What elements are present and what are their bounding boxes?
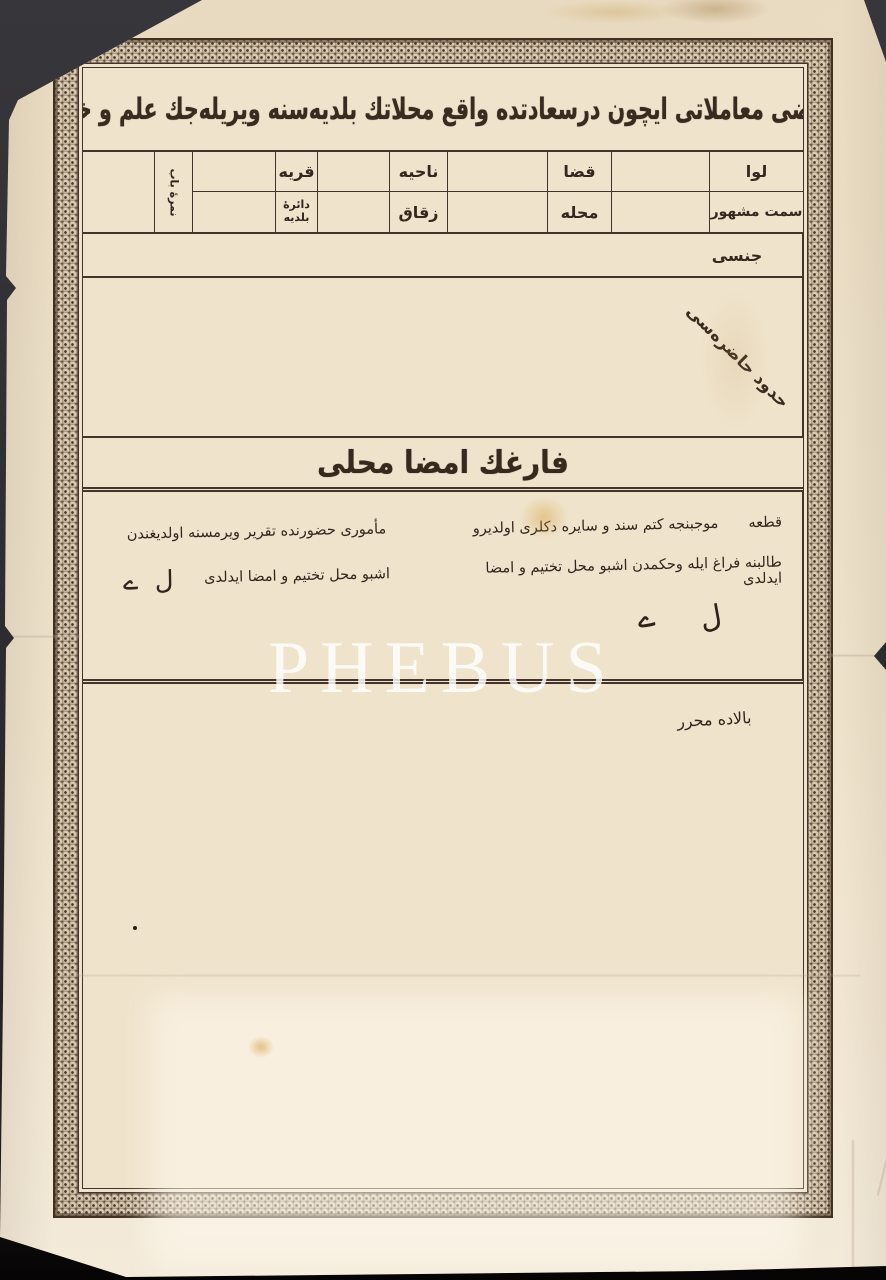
torn-paper-sheet: هر نوع املاك و اراضى معاملاتى ايچون درسع… — [0, 0, 886, 1280]
signature-heading-band: فارغك امضا محلى — [83, 438, 803, 492]
field-value-nahiye — [318, 152, 390, 192]
boundaries-write-area — [83, 278, 672, 436]
stain — [660, 0, 770, 24]
stain — [545, 0, 685, 24]
boundaries-grid: حدود حاضره‌سى — [83, 278, 803, 436]
field-label-semt: سمت مشهور — [710, 192, 803, 232]
cins-value-area — [83, 234, 672, 276]
boundaries-label-cell: حدود حاضره‌سى — [672, 278, 803, 436]
left-note-line2-text: اشبو محل تختيم و امضا ايدلدى — [204, 566, 390, 586]
flourish-mark: ے — [634, 599, 657, 637]
field-value-karye — [193, 152, 276, 192]
title-band: هر نوع املاك و اراضى معاملاتى ايچون درسع… — [83, 68, 803, 152]
field-value-kapi-numarasi — [83, 152, 155, 232]
flourish-mark: ل ے — [123, 566, 174, 597]
left-note-line2: اشبو محل تختيم و امضا ايدلدى ل ے — [105, 561, 409, 597]
cins-label: جنسى — [672, 234, 803, 276]
boundaries-label: حدود حاضره‌سى — [682, 302, 793, 413]
cins-grid: جنسى — [83, 234, 803, 276]
document-title-calligraphy: هر نوع املاك و اراضى معاملاتى ايچون درسع… — [83, 92, 803, 126]
field-label-nahiye: ناحيه — [390, 152, 448, 192]
right-note-line2: طالبنه فراغ ايله وحكمدن اشبو محل تختيم و… — [450, 555, 783, 594]
field-value-liva — [612, 152, 710, 192]
field-label-kapi-numarasi: نمرهٔ باب — [155, 152, 193, 232]
declaration-grid: قطعه موجبنجه كتم سند و سايره دكلرى اولدي… — [83, 492, 803, 679]
field-label-karye: قريه — [276, 152, 318, 192]
balada-muharrer-note: بالاده محرر — [676, 708, 751, 731]
field-label-liva: لوا — [710, 152, 803, 192]
kita-label: قطعه — [748, 515, 782, 532]
edge-crease — [852, 1140, 854, 1270]
cins-row: جنسى — [83, 234, 803, 278]
right-note-line1: موجبنجه كتم سند و سايره دكلرى اولديرو — [473, 516, 719, 537]
location-table: لوا قضا ناحيه قريه نمرهٔ باب سمت مشهور — [83, 152, 803, 234]
declaration-left-block: مأمورى حضورنده تقرير ويرمسنه اولديغندن ا… — [83, 492, 430, 679]
field-label-zukak: زقاق — [390, 192, 448, 232]
field-value-zukak — [318, 192, 390, 232]
field-label-kaza: قضا — [548, 152, 612, 192]
signature-heading: فارغك امضا محلى — [317, 444, 569, 481]
boundaries-section: حدود حاضره‌سى — [83, 278, 803, 438]
lower-writing-area: بالاده محرر — [83, 684, 803, 1188]
fold-crease — [830, 654, 886, 657]
declaration-right-block: قطعه موجبنجه كتم سند و سايره دكلرى اولدي… — [430, 492, 803, 679]
location-table-grid: لوا قضا ناحيه قريه نمرهٔ باب سمت مشهور — [83, 152, 803, 232]
flourish-mark: ل — [697, 598, 725, 636]
edge-tear-mark — [875, 1150, 886, 1195]
document-content-area: هر نوع املاك و اراضى معاملاتى ايچون درسع… — [82, 67, 804, 1189]
ink-speck — [133, 926, 137, 930]
right-signature-flourishes: ل ے — [450, 600, 782, 635]
scan-background: هر نوع املاك و اراضى معاملاتى ايچون درسع… — [0, 0, 886, 1280]
field-value-kaza — [448, 152, 548, 192]
field-value-semt — [612, 192, 710, 232]
field-label-mahalle: محله — [548, 192, 612, 232]
field-label-belediye: دائرهٔ بلديه — [276, 192, 318, 232]
field-value-mahalle — [448, 192, 548, 232]
declaration-section: قطعه موجبنجه كتم سند و سايره دكلرى اولدي… — [83, 492, 803, 684]
field-value-belediye — [193, 192, 276, 232]
ornamental-border-frame: هر نوع املاك و اراضى معاملاتى ايچون درسع… — [53, 38, 833, 1218]
left-note-line1: مأمورى حضورنده تقرير ويرمسنه اولديغندن — [105, 521, 408, 543]
